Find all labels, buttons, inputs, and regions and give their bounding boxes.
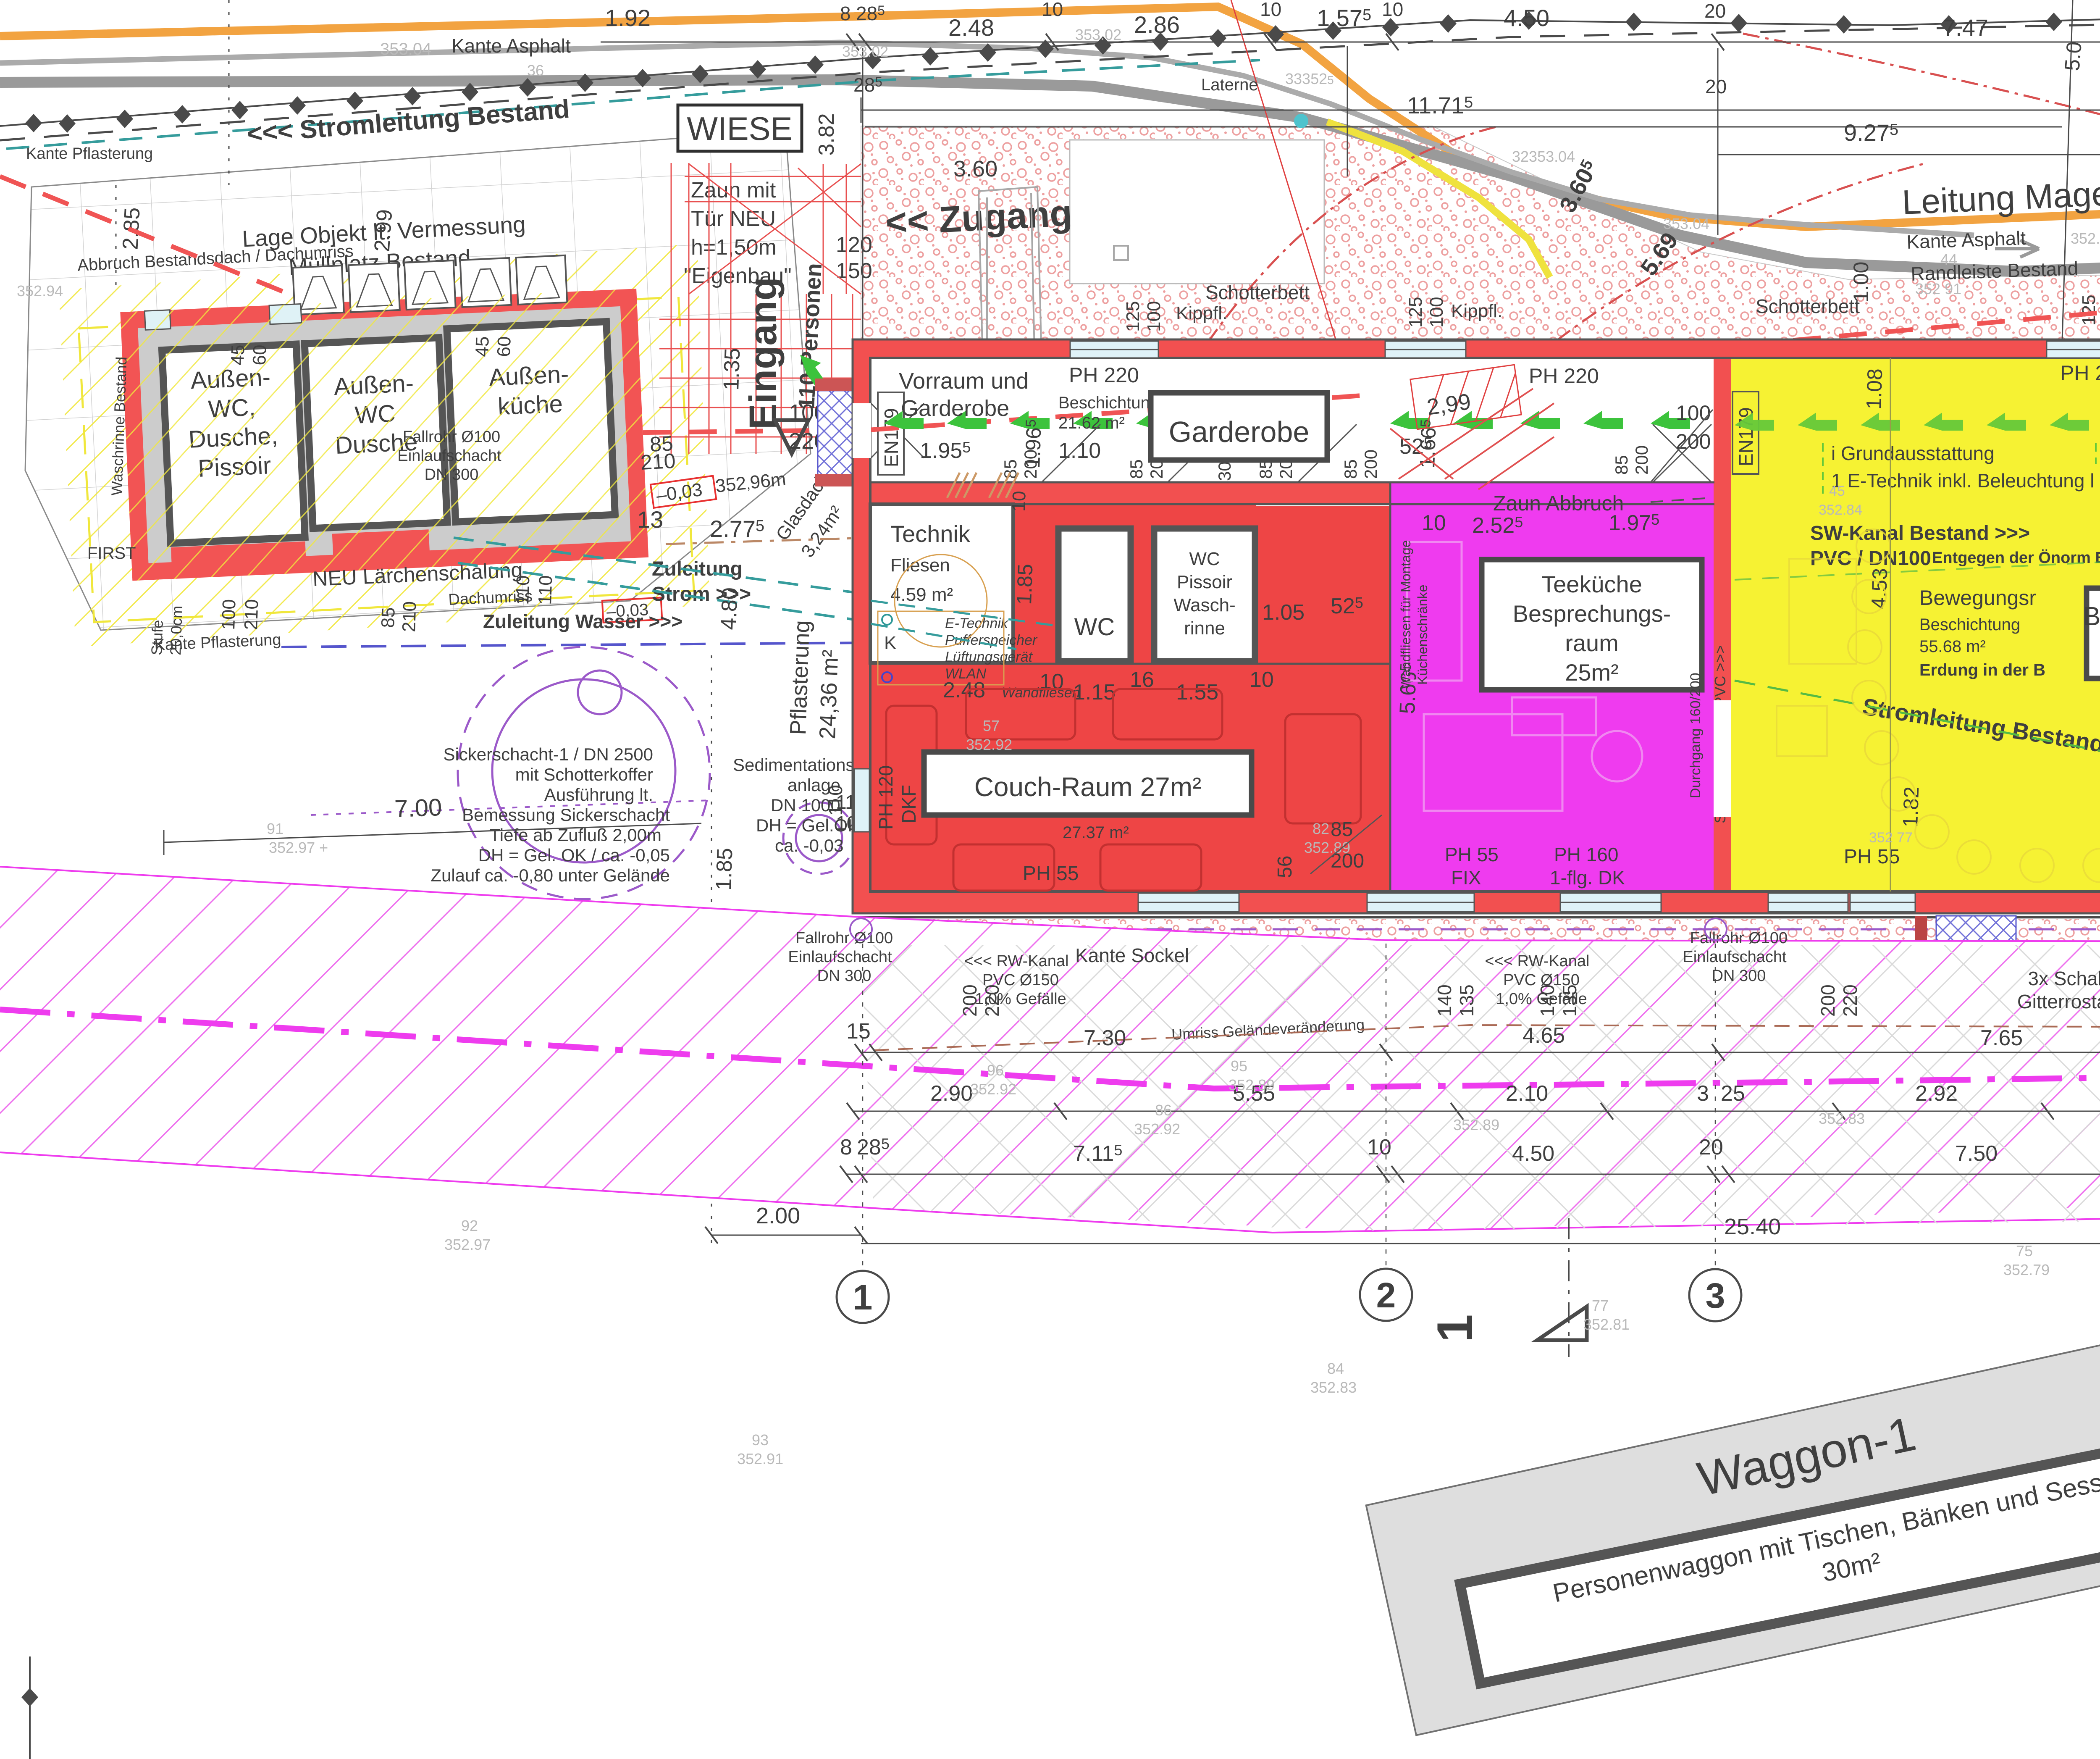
- svg-text:85: 85: [1612, 455, 1631, 475]
- svg-text:Sickerschacht-1 / DN 2500: Sickerschacht-1 / DN 2500: [443, 744, 653, 764]
- svg-text:Einlaufschacht: Einlaufschacht: [788, 948, 892, 966]
- svg-text:24,36 m²: 24,36 m²: [815, 649, 843, 739]
- svg-text:Teeküche: Teeküche: [1541, 571, 1642, 597]
- svg-text:4.80: 4.80: [717, 587, 742, 630]
- svg-text:110: 110: [512, 575, 533, 605]
- svg-text:210: 210: [241, 599, 262, 630]
- svg-text:86: 86: [1155, 1102, 1172, 1119]
- svg-text:<<< RW-Kanal: <<< RW-Kanal: [1485, 952, 1590, 970]
- svg-text:K: K: [884, 633, 896, 653]
- svg-text:4.50: 4.50: [1504, 5, 1549, 31]
- svg-text:135: 135: [1559, 984, 1580, 1017]
- svg-text:110: 110: [824, 785, 846, 815]
- svg-text:2.92: 2.92: [1915, 1081, 1958, 1106]
- svg-text:PH 220: PH 220: [1529, 364, 1599, 388]
- svg-text:352.89: 352.89: [1228, 1076, 1275, 1094]
- svg-text:60: 60: [493, 336, 515, 358]
- svg-text:2.99: 2.99: [370, 208, 397, 252]
- svg-text:Zuleitung Wasser >>>: Zuleitung Wasser >>>: [483, 610, 682, 632]
- svg-text:WC: WC: [1074, 613, 1115, 641]
- svg-text:353.04: 353.04: [380, 40, 431, 58]
- svg-text:352.97 +: 352.97 +: [269, 839, 328, 856]
- svg-text:4.50: 4.50: [1512, 1141, 1554, 1166]
- svg-text:85: 85: [1341, 459, 1360, 479]
- svg-text:200: 200: [1632, 445, 1651, 475]
- svg-text:100: 100: [1426, 297, 1447, 328]
- svg-text:EN179: EN179: [1735, 407, 1757, 466]
- svg-text:WC: WC: [1189, 549, 1220, 569]
- svg-text:4.53: 4.53: [1867, 568, 1892, 609]
- svg-text:13: 13: [637, 506, 663, 533]
- svg-text:45: 45: [227, 344, 249, 366]
- svg-text:45: 45: [472, 336, 493, 358]
- svg-text:352.79: 352.79: [2003, 1261, 2050, 1278]
- svg-text:96: 96: [987, 1062, 1004, 1079]
- svg-text:mit Schotterkoffer: mit Schotterkoffer: [515, 765, 653, 784]
- svg-text:200: 200: [1021, 450, 1040, 479]
- svg-text:352.99: 352.99: [2071, 230, 2100, 247]
- svg-text:135: 135: [1456, 984, 1478, 1017]
- svg-text:Besprechungs-: Besprechungs-: [1513, 600, 1671, 627]
- svg-text:Zaun Abbruch: Zaun Abbruch: [1493, 492, 1624, 515]
- svg-text:Ausführung lt.: Ausführung lt.: [544, 785, 653, 805]
- svg-text:10: 10: [1422, 511, 1446, 535]
- svg-text:210: 210: [399, 601, 420, 632]
- svg-text:1.85: 1.85: [1012, 563, 1037, 605]
- svg-text:352.94: 352.94: [17, 282, 63, 300]
- svg-text:352 77: 352 77: [1869, 830, 1913, 846]
- svg-text:1.35: 1.35: [719, 347, 745, 391]
- svg-text:10: 10: [1249, 668, 1274, 692]
- svg-text:Pissoir: Pissoir: [1177, 572, 1232, 592]
- svg-text:20: 20: [1699, 1135, 1723, 1160]
- svg-text:Bewegungsr: Bewegungsr: [1919, 586, 2036, 610]
- svg-text:352.92: 352.92: [966, 736, 1012, 753]
- svg-text:2: 2: [1376, 1275, 1396, 1315]
- svg-text:Küchenschränke: Küchenschränke: [1415, 585, 1430, 685]
- svg-text:WIESE: WIESE: [687, 110, 792, 147]
- svg-text:125: 125: [1405, 297, 1426, 328]
- svg-text:10: 10: [1260, 0, 1281, 20]
- svg-text:PH 220: PH 220: [2060, 361, 2100, 385]
- svg-text:120: 120: [836, 233, 872, 257]
- svg-text:Beschichtung: Beschichtung: [1058, 394, 1159, 412]
- svg-text:Bewegungsraum 95m²: Bewegungsraum 95m²: [2083, 602, 2100, 631]
- svg-text:Gitterrostabdeckung: Gitterrostabdeckung: [2017, 991, 2100, 1012]
- svg-text:1.85: 1.85: [711, 847, 737, 891]
- svg-text:DH = Gel. OK / ca. -0,05: DH = Gel. OK / ca. -0,05: [478, 845, 670, 865]
- svg-text:h=1,50m: h=1,50m: [691, 235, 777, 260]
- svg-text:353.02: 353.02: [1075, 26, 1121, 43]
- svg-text:1.00: 1.00: [1849, 262, 1873, 302]
- svg-text:8: 8: [840, 3, 851, 24]
- svg-text:PH 55: PH 55: [1445, 844, 1499, 865]
- svg-text:352.83: 352.83: [1819, 1110, 1865, 1127]
- svg-text:Fallrohr Ø100: Fallrohr Ø100: [403, 428, 500, 446]
- svg-text:Lüftungsgerät: Lüftungsgerät: [945, 649, 1033, 665]
- svg-text:95: 95: [1231, 1057, 1247, 1075]
- svg-text:7.50: 7.50: [1955, 1141, 1998, 1166]
- svg-text:1: 1: [1427, 1314, 1483, 1342]
- svg-text:75: 75: [2016, 1242, 2033, 1259]
- svg-text:45: 45: [1829, 483, 1845, 499]
- svg-text:Schotterbett: Schotterbett: [1756, 295, 1860, 317]
- svg-text:Kante Asphalt: Kante Asphalt: [451, 35, 571, 57]
- svg-text:1 E-Technik inkl. Beleuchtung: 1 E-Technik inkl. Beleuchtung l: [1831, 470, 2094, 492]
- svg-text:85: 85: [1126, 459, 1146, 479]
- svg-text:Zulauf ca. -0,80 unter Geländ: Zulauf ca. -0,80 unter Gelände: [430, 865, 670, 885]
- svg-text:Kante Sockel: Kante Sockel: [1075, 944, 1189, 966]
- svg-text:1: 1: [853, 1278, 873, 1317]
- svg-text:1.08: 1.08: [1862, 368, 1887, 410]
- svg-text:Einlaufschacht: Einlaufschacht: [397, 447, 501, 465]
- svg-text:220: 220: [1839, 984, 1861, 1017]
- svg-text:55.68 m²: 55.68 m²: [1919, 637, 1986, 656]
- svg-text:Garderobe: Garderobe: [901, 396, 1009, 421]
- svg-text:44: 44: [1940, 251, 1957, 268]
- svg-text:Durchgang 160/200: Durchgang 160/200: [1688, 673, 1704, 798]
- svg-text:4.59 m²: 4.59 m²: [890, 584, 953, 605]
- svg-text:84: 84: [1327, 1360, 1344, 1377]
- svg-text:Beschichtung: Beschichtung: [1919, 615, 2020, 634]
- svg-text:2.86: 2.86: [1134, 11, 1180, 38]
- svg-text:352.89: 352.89: [1453, 1116, 1499, 1133]
- svg-text:1.92: 1.92: [605, 5, 651, 31]
- svg-text:2.00: 2.00: [756, 1203, 800, 1228]
- svg-text:PH 120: PH 120: [875, 765, 897, 830]
- svg-text:3.82: 3.82: [814, 113, 839, 155]
- svg-text:Tür NEU: Tür NEU: [691, 207, 776, 231]
- svg-text:Vorraum und: Vorraum und: [899, 368, 1029, 394]
- svg-text:7.00: 7.00: [394, 794, 442, 823]
- svg-text:200: 200: [1361, 450, 1381, 479]
- svg-text:Wasch-: Wasch-: [1173, 595, 1236, 615]
- svg-text:2.90: 2.90: [930, 1081, 973, 1106]
- svg-text:Bemessung Sickerschacht: Bemessung Sickerschacht: [462, 805, 670, 825]
- svg-text:93: 93: [752, 1431, 769, 1449]
- svg-text:56: 56: [1274, 856, 1296, 878]
- svg-text:85: 85: [1331, 818, 1353, 841]
- svg-text:27.37 m²: 27.37 m²: [1063, 823, 1129, 842]
- svg-text:1.55: 1.55: [1176, 680, 1218, 705]
- svg-text:1.15: 1.15: [1073, 680, 1116, 705]
- svg-text:7.47: 7.47: [1942, 14, 1988, 41]
- svg-text:20: 20: [1705, 76, 1727, 97]
- svg-text:i Grundausstattung: i Grundausstattung: [1831, 442, 1995, 464]
- svg-text:3x Schalstein und: 3x Schalstein und: [2028, 968, 2100, 989]
- svg-text:Couch-Raum 27m²: Couch-Raum 27m²: [974, 772, 1202, 802]
- svg-text:220: 220: [981, 984, 1003, 1017]
- svg-text:125: 125: [2079, 295, 2099, 326]
- svg-text:25.40: 25.40: [1724, 1214, 1781, 1239]
- svg-text:1.05: 1.05: [1262, 600, 1305, 625]
- svg-text:92: 92: [461, 1217, 478, 1234]
- svg-text:91: 91: [267, 820, 283, 837]
- svg-text:352.84: 352.84: [1819, 502, 1862, 518]
- svg-text:5.0: 5.0: [2060, 41, 2086, 72]
- svg-text:Erdung in der B: Erdung in der B: [1919, 661, 2045, 679]
- svg-text:SW-Kanal Bestand >>>: SW-Kanal Bestand >>>: [1810, 522, 2030, 544]
- svg-text:21.62 m²: 21.62 m²: [1058, 414, 1125, 432]
- svg-text:36: 36: [527, 62, 544, 79]
- svg-text:Pflasterung: Pflasterung: [785, 620, 814, 735]
- svg-text:Kippfl.: Kippfl.: [1176, 303, 1227, 323]
- svg-text:25m²: 25m²: [1565, 659, 1619, 686]
- svg-text:325: 325: [1697, 1081, 1745, 1106]
- svg-text:Wandfliesen für Montage: Wandfliesen für Montage: [1398, 540, 1413, 689]
- svg-text:333525: 333525: [1285, 70, 1334, 87]
- svg-text:7.65: 7.65: [1980, 1026, 2023, 1050]
- svg-text:<<< RW-Kanal: <<< RW-Kanal: [964, 952, 1069, 970]
- svg-text:15: 15: [846, 1019, 871, 1044]
- svg-text:30: 30: [1215, 461, 1234, 481]
- svg-text:125: 125: [1123, 301, 1143, 332]
- svg-text:Einlaufschacht: Einlaufschacht: [1683, 948, 1787, 966]
- svg-text:3.60: 3.60: [953, 156, 997, 181]
- svg-text:32353.04: 32353.04: [1512, 148, 1575, 165]
- svg-text:Zuleitung: Zuleitung: [652, 558, 743, 580]
- svg-text:352.92: 352.92: [970, 1081, 1016, 1098]
- svg-text:140: 140: [1433, 984, 1455, 1017]
- svg-text:100: 100: [218, 599, 240, 630]
- svg-text:140: 140: [1536, 984, 1558, 1017]
- svg-text:Schotterbett: Schotterbett: [1205, 281, 1310, 303]
- svg-text:DN 300: DN 300: [425, 466, 479, 484]
- svg-text:352.91: 352.91: [737, 1450, 783, 1467]
- svg-text:1-flg. DK: 1-flg. DK: [1550, 867, 1625, 889]
- svg-text:10: 10: [1039, 670, 1064, 694]
- svg-text:Eingang: Eingang: [742, 277, 785, 429]
- svg-text:85: 85: [378, 607, 399, 628]
- svg-text:Kippfl.: Kippfl.: [1451, 301, 1502, 321]
- svg-text:352.81: 352.81: [1583, 1316, 1630, 1333]
- svg-text:raum: raum: [1565, 630, 1619, 656]
- svg-text:352.97: 352.97: [444, 1236, 491, 1253]
- svg-text:210: 210: [640, 449, 676, 474]
- svg-text:PH 55: PH 55: [1844, 846, 1900, 868]
- svg-text:3: 3: [1706, 1276, 1725, 1315]
- svg-text:57: 57: [983, 717, 1000, 734]
- svg-text:100: 100: [1676, 401, 1711, 425]
- svg-text:rinne: rinne: [1184, 618, 1225, 639]
- svg-text:Zaun mit: Zaun mit: [691, 178, 776, 202]
- svg-text:2.48: 2.48: [948, 14, 994, 41]
- svg-text:7.30: 7.30: [1084, 1026, 1126, 1050]
- svg-text:4.65: 4.65: [1522, 1023, 1565, 1048]
- svg-text:100: 100: [1144, 301, 1164, 332]
- svg-text:10: 10: [1042, 0, 1063, 20]
- svg-text:82: 82: [1312, 820, 1329, 837]
- svg-text:Kante Asphalt: Kante Asphalt: [1906, 227, 2026, 253]
- svg-text:20: 20: [1704, 0, 1726, 22]
- svg-text:PH 160: PH 160: [1554, 844, 1618, 865]
- svg-text:353.02: 353.02: [842, 43, 888, 60]
- svg-text:60: 60: [249, 344, 270, 366]
- svg-text:8: 8: [840, 1135, 852, 1160]
- svg-text:Garderobe: Garderobe: [1169, 415, 1310, 448]
- svg-text:200: 200: [959, 984, 981, 1017]
- svg-text:FIRST: FIRST: [87, 544, 136, 563]
- svg-text:2.10: 2.10: [1506, 1081, 1548, 1106]
- svg-text:DN 300: DN 300: [1712, 967, 1766, 985]
- svg-text:200: 200: [1817, 984, 1839, 1017]
- svg-text:PH 220: PH 220: [1069, 363, 1139, 387]
- svg-text:PH 55: PH 55: [1023, 862, 1079, 885]
- svg-text:352.83: 352.83: [1310, 1379, 1357, 1396]
- svg-text:FIX: FIX: [1451, 867, 1481, 889]
- svg-text:353.04: 353.04: [1663, 215, 1709, 232]
- svg-text:Kante Pflasterung: Kante Pflasterung: [26, 145, 153, 163]
- svg-text:10: 10: [1382, 0, 1403, 20]
- svg-text:352.92: 352.92: [1134, 1120, 1180, 1138]
- svg-text:Laterne: Laterne: [1201, 76, 1258, 94]
- svg-text:77: 77: [1592, 1297, 1609, 1314]
- svg-text:Technik: Technik: [890, 521, 971, 547]
- svg-text:352 91: 352 91: [1915, 280, 1961, 297]
- svg-text:110: 110: [535, 575, 556, 605]
- svg-text:Pufferspeicher: Pufferspeicher: [945, 632, 1038, 648]
- svg-text:DKF: DKF: [898, 785, 920, 823]
- svg-text:Fallrohr Ø100: Fallrohr Ø100: [795, 929, 893, 947]
- svg-text:2.48: 2.48: [943, 678, 985, 702]
- svg-text:10: 10: [1008, 491, 1030, 512]
- svg-text:11.715: 11.715: [1407, 92, 1473, 118]
- svg-text:Fliesen: Fliesen: [890, 555, 950, 576]
- svg-text:10: 10: [1367, 1135, 1391, 1160]
- svg-text:Sedimentations-: Sedimentations-: [733, 755, 861, 775]
